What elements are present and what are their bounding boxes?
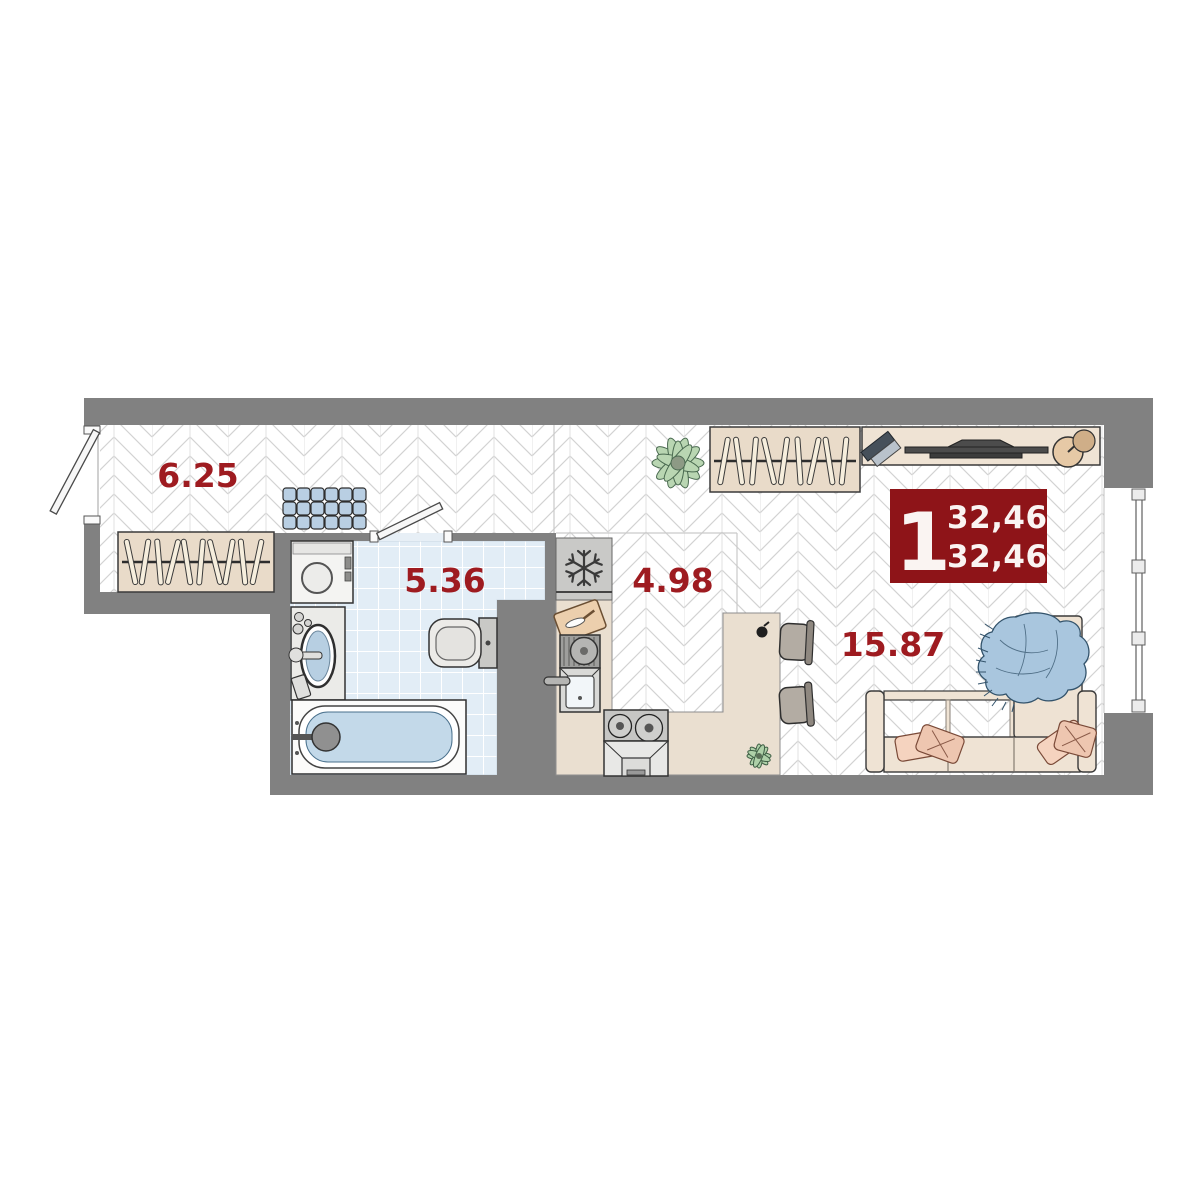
kitchen-area-label: 4.98 (632, 561, 713, 600)
badge-rooms-count: 1 (895, 496, 951, 589)
living-room-area-label: 15.87 (841, 625, 945, 664)
shoe-cabinet (283, 488, 366, 529)
bathroom-area-label: 5.36 (404, 561, 485, 600)
wall-right-lower (1104, 713, 1153, 795)
chair-2 (779, 682, 815, 728)
oven (604, 741, 668, 776)
toilet (429, 618, 497, 668)
washing-machine (291, 541, 353, 603)
wall-bathroom-top-a (290, 533, 370, 541)
sofa-arm-left (866, 691, 884, 772)
entrance-door-leaf (50, 430, 99, 515)
window-glazing (1136, 490, 1142, 711)
fridge (556, 538, 612, 600)
wall-top (98, 398, 1153, 425)
badge-living-area: 32,46 (947, 539, 1048, 575)
badge-total-area: 32,46 (947, 500, 1048, 536)
wall-hallway-bottom (84, 592, 290, 614)
wall-shaft (497, 600, 556, 775)
stove (604, 710, 668, 776)
floorplan-svg: 6.25 5.36 4.98 15.87 1 32,46 32,46 (0, 0, 1200, 1200)
door-jamb (84, 516, 100, 524)
chair-1 (779, 619, 814, 665)
wall-bathroom-top-b (452, 533, 556, 541)
hallway-area-label: 6.25 (157, 456, 238, 495)
wall-bottom (270, 775, 1153, 795)
wall-right-upper (1104, 398, 1153, 488)
floorplan-canvas: 6.25 5.36 4.98 15.87 1 32,46 32,46 (0, 0, 1200, 1200)
bathroom-vanity (289, 607, 345, 700)
wall-bathroom-right (545, 533, 556, 600)
bath-drain-icon (312, 723, 340, 751)
door-jamb (444, 531, 452, 542)
washer-drum (302, 563, 332, 593)
entrance-door (50, 426, 100, 524)
plant-small (747, 744, 772, 769)
living-wardrobe (710, 427, 860, 492)
bathtub (292, 700, 466, 774)
hallway-wardrobe (118, 532, 274, 592)
sink-faucet-icon (544, 677, 570, 685)
window (1104, 488, 1153, 713)
tv-console (861, 427, 1100, 469)
window-recess (1104, 488, 1153, 713)
wall-left-upper (84, 398, 100, 427)
apartment-badge: 1 32,46 32,46 (890, 489, 1048, 589)
exterior-mask (84, 612, 270, 802)
